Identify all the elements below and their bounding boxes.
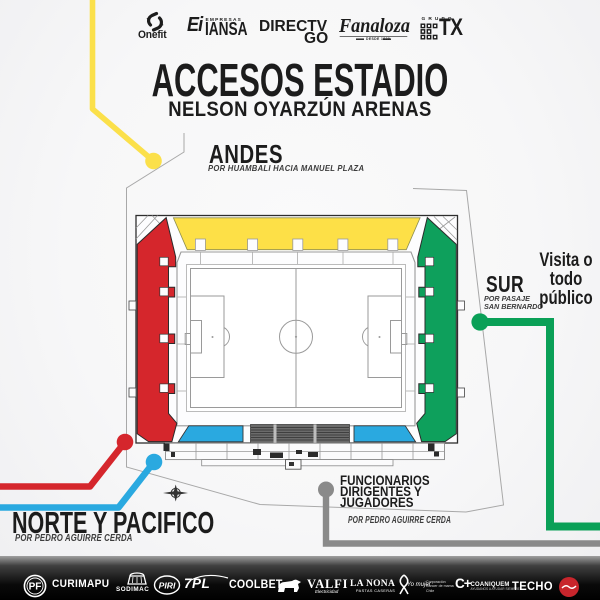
svg-text:PF: PF [29,582,42,593]
svg-text:PIRI: PIRI [159,580,176,590]
